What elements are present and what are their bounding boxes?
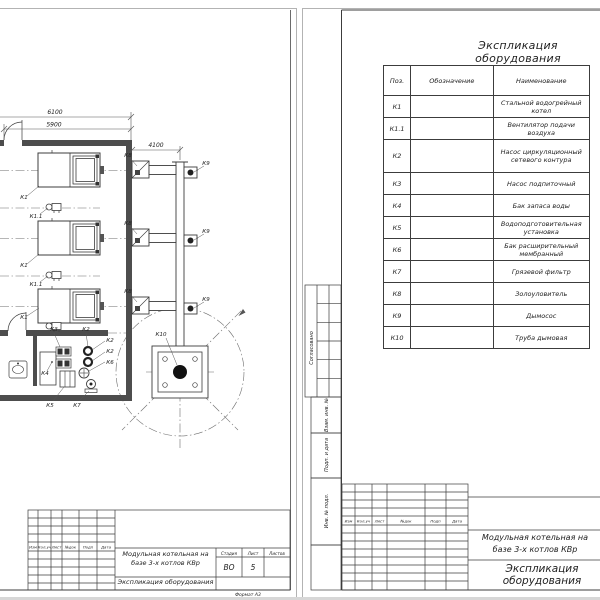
- table-row: К4Бак запаса воды: [384, 195, 590, 217]
- pos-cell: К5: [384, 217, 411, 239]
- callout-k8-3r: К8: [124, 289, 132, 295]
- feed-pump-k3-1: [56, 347, 71, 356]
- flue-row-3: [132, 297, 197, 314]
- callout-k1-3r: К1: [20, 315, 27, 321]
- pos-cell: К4: [384, 195, 411, 217]
- name-cell: Бак расширительный мембранный: [493, 239, 589, 261]
- callout-k9-3r: К9: [202, 297, 210, 303]
- replacement-label: Взам. инв. №: [324, 398, 330, 432]
- designation-cell: [411, 283, 493, 305]
- callout-k1-1r: К1: [20, 195, 27, 201]
- approved-label: Согласовано: [309, 331, 315, 365]
- pos-cell: К2: [384, 140, 411, 173]
- left-revision-header: Изм Кол.уч Лист №док Подп Дата: [29, 545, 111, 550]
- pos-cell: К7: [384, 261, 411, 283]
- flue-row-2: [132, 229, 197, 246]
- circulation-pump-k2-1: [84, 347, 92, 355]
- designation-cell: [411, 173, 493, 195]
- designation-cell: [411, 195, 493, 217]
- svg-text:Дата: Дата: [451, 519, 463, 524]
- callout-k4: К4: [41, 371, 49, 377]
- name-cell: Насос подпиточный: [493, 173, 589, 195]
- right-project-title: Модульная котельная на базе 3-х котлов К…: [472, 532, 598, 555]
- svg-text:Изм: Изм: [29, 545, 37, 550]
- designation-cell: [411, 327, 493, 349]
- callout-k9-2r: К9: [202, 229, 210, 235]
- svg-text:Кол.уч: Кол.уч: [357, 519, 371, 524]
- equipment-table: Поз. Обозначение Наименование К1Стальной…: [383, 65, 590, 349]
- flue-collector: [172, 162, 188, 366]
- svg-text:№док: №док: [64, 545, 77, 550]
- air-fan-2: [46, 272, 61, 282]
- header-name: Наименование: [493, 66, 589, 96]
- pos-cell: К1: [384, 96, 411, 118]
- flue-row-1: [132, 161, 197, 178]
- svg-text:Подп: Подп: [430, 519, 441, 524]
- designation-cell: [411, 118, 493, 140]
- left-stage-block: Стадия Лист Листов ВО 5 Формат А3: [221, 551, 285, 598]
- table-row: К7Грязевой фильтр: [384, 261, 590, 283]
- sink: [9, 361, 27, 378]
- designation-cell: [411, 261, 493, 283]
- expansion-tank-k6: [79, 368, 89, 378]
- svg-text:Дата: Дата: [100, 545, 112, 550]
- dim-6100: 6100: [47, 109, 62, 116]
- name-cell: Дымосос: [493, 305, 589, 327]
- callout-k5: К5: [46, 403, 54, 409]
- callout-k1_1-1r: К1.1: [30, 214, 43, 220]
- chimney-foundation: [152, 346, 208, 398]
- name-cell: Бак запаса воды: [493, 195, 589, 217]
- callout-k1-2r: К1: [20, 263, 27, 269]
- table-row: К1Стальной водогрейный котел: [384, 96, 590, 118]
- sheet-number: 5: [251, 563, 256, 572]
- feed-pump-k3-2: [56, 359, 71, 368]
- designation-cell: [411, 96, 493, 118]
- right-margin-tables: [305, 285, 341, 590]
- callout-k9-1r: К9: [202, 161, 210, 167]
- header-pos: Поз.: [384, 66, 411, 96]
- door-top: [4, 120, 22, 140]
- left-project-title: Модульная котельная на базе 3-х котлов К…: [116, 550, 215, 568]
- table-header-row: Поз. Обозначение Наименование: [384, 66, 590, 96]
- designation-cell: [411, 239, 493, 261]
- table-row: К6Бак расширительный мембранный: [384, 239, 590, 261]
- water-treatment-k5: [60, 371, 75, 387]
- water-storage-tank-k4: [40, 352, 56, 385]
- name-cell: Водоподготовительная установка: [493, 217, 589, 239]
- callout-k2-top: К2: [82, 327, 90, 333]
- callout-k2-r1: К2: [106, 338, 114, 344]
- pos-cell: К1.1: [384, 118, 411, 140]
- air-fan-1: [46, 204, 61, 214]
- table-row: К10Труба дымовая: [384, 327, 590, 349]
- boiler-1: [38, 150, 104, 187]
- right-revision-header: Изм Кол.уч Лист №док Подп Дата: [345, 519, 463, 524]
- callout-k8-1r: К8: [124, 153, 132, 159]
- sign-date-label: Подп. и дата: [324, 438, 330, 472]
- callout-k7: К7: [73, 403, 81, 409]
- svg-text:Подп: Подп: [83, 545, 94, 550]
- callout-k2-r2: К2: [106, 349, 114, 355]
- svg-text:Изм: Изм: [345, 519, 353, 524]
- format-note: Формат А3: [235, 592, 261, 598]
- svg-text:Лист: Лист: [51, 545, 62, 550]
- dim-4100: 4100: [148, 142, 163, 149]
- table-row: К2Насос циркуляционный сетевого контура: [384, 140, 590, 173]
- callout-k1_1-2r: К1.1: [30, 282, 43, 288]
- pos-cell: К3: [384, 173, 411, 195]
- sheets-label: Листов: [268, 551, 285, 556]
- left-document-title: Экспликация оборудования: [116, 578, 215, 586]
- table-row: К3Насос подпиточный: [384, 173, 590, 195]
- pos-cell: К10: [384, 327, 411, 349]
- pos-cell: К9: [384, 305, 411, 327]
- callout-k10: К10: [156, 332, 167, 338]
- dirt-filter-k7: [85, 380, 97, 393]
- name-cell: Насос циркуляционный сетевого контура: [493, 140, 589, 173]
- right-margin-labels: Согласовано Взам. инв. № Подп. и дата Ин…: [309, 331, 330, 528]
- svg-text:Лист: Лист: [374, 519, 385, 524]
- drawing-canvas: 6100 5900 4100: [0, 0, 600, 600]
- name-cell: Стальной водогрейный котел: [493, 96, 589, 118]
- designation-cell: [411, 217, 493, 239]
- boiler-3: [38, 286, 104, 323]
- stage-label: Стадия: [221, 551, 238, 556]
- stage-value: ВО: [223, 563, 234, 572]
- designation-cell: [411, 140, 493, 173]
- callout-k3: К3: [50, 327, 58, 333]
- inventory-label: Инв. № подл.: [324, 494, 330, 529]
- equipment-table-title: Экспликация оборудования: [436, 39, 600, 65]
- name-cell: Вентилятор подачи воздуха: [493, 118, 589, 140]
- header-designation: Обозначение: [411, 66, 493, 96]
- svg-text:Кол.уч: Кол.уч: [38, 545, 52, 550]
- name-cell: Грязевой фильтр: [493, 261, 589, 283]
- dim-5900: 5900: [46, 122, 61, 129]
- callout-k6: К6: [106, 360, 114, 366]
- table-row: К5Водоподготовительная установка: [384, 217, 590, 239]
- svg-text:№док: №док: [399, 519, 412, 524]
- right-document-title: Экспликация оборудования: [472, 563, 600, 587]
- table-row: К8Золоуловитель: [384, 283, 590, 305]
- pos-cell: К8: [384, 283, 411, 305]
- name-cell: Труба дымовая: [493, 327, 589, 349]
- boiler-2: [38, 218, 104, 255]
- designation-cell: [411, 305, 493, 327]
- callout-k8-2r: К8: [124, 221, 132, 227]
- circulation-pump-k2-2: [84, 358, 92, 366]
- name-cell: Золоуловитель: [493, 283, 589, 305]
- table-row: К1.1Вентилятор подачи воздуха: [384, 118, 590, 140]
- sheet-label: Лист: [247, 551, 259, 556]
- table-row: К9Дымосос: [384, 305, 590, 327]
- pos-cell: К6: [384, 239, 411, 261]
